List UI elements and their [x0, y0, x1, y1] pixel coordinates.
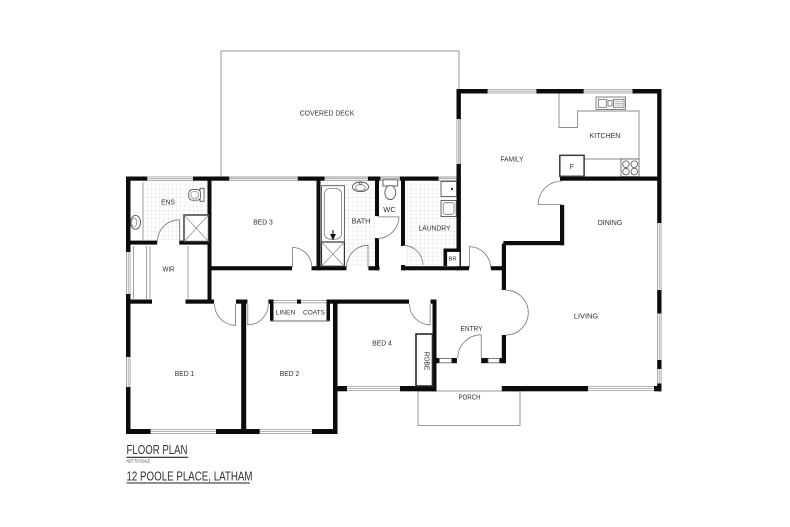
svg-text:LAUNDRY: LAUNDRY [419, 224, 451, 233]
svg-text:FAMILY: FAMILY [501, 155, 524, 164]
svg-text:COATS: COATS [303, 310, 326, 317]
svg-text:KITCHEN: KITCHEN [590, 131, 621, 140]
svg-text:BED 4: BED 4 [372, 339, 392, 348]
svg-text:BATH: BATH [352, 217, 371, 226]
svg-text:12 POOLE PLACE, LATHAM: 12 POOLE PLACE, LATHAM [127, 468, 253, 483]
svg-text:COVERED DECK: COVERED DECK [300, 109, 355, 118]
svg-text:NOT TO SCALE: NOT TO SCALE [127, 459, 151, 465]
svg-text:ENS: ENS [161, 198, 175, 207]
svg-text:PORCH: PORCH [459, 393, 481, 402]
svg-text:ROBE: ROBE [423, 352, 430, 371]
svg-text:F: F [570, 164, 574, 171]
svg-text:FLOOR PLAN: FLOOR PLAN [127, 442, 188, 457]
svg-text:LINEN: LINEN [276, 310, 296, 317]
svg-text:LIVING: LIVING [574, 312, 599, 321]
svg-text:BED 2: BED 2 [280, 369, 300, 378]
svg-text:DINING: DINING [598, 218, 623, 227]
svg-text:BED 1: BED 1 [175, 369, 195, 378]
svg-text:WC: WC [383, 205, 396, 214]
svg-text:BED 3: BED 3 [253, 218, 273, 227]
svg-text:WIR: WIR [163, 265, 175, 274]
svg-text:ENTRY: ENTRY [461, 324, 483, 333]
svg-text:BR: BR [448, 257, 456, 263]
